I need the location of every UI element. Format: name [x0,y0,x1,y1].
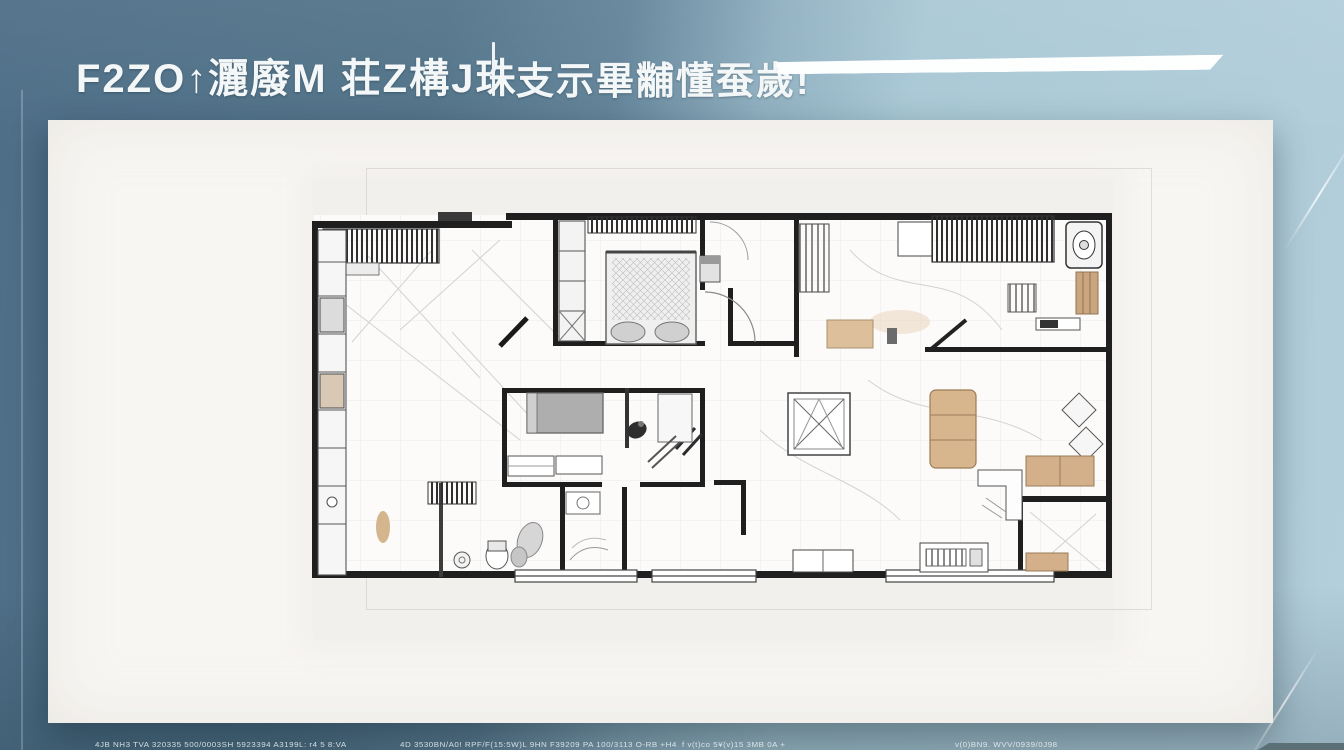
footer: 4JB NH3 TVA 320335 500/0003SH 5923394 A3… [0,738,1344,750]
washer-icon [1066,222,1102,268]
poster-background: F2ZO↑灑廢M 荘Z構J珠 支示畢黼懂蚕歲! [0,0,1344,750]
footer-text-a: 4JB NH3 TVA 320335 500/0003SH 5923394 A3… [95,740,347,748]
accent-bar [776,55,1228,75]
background-streak-top [1284,139,1344,250]
title-right: 支示畢黼懂蚕歲! [516,50,811,105]
footer-text-c: f v(t)co 5¥(v)15 3MB 0A + [682,740,785,748]
header: F2ZO↑灑廢M 荘Z構J珠 支示畢黼懂蚕歲! [0,0,1344,120]
title-divider [492,42,495,96]
table-icon [788,393,850,455]
living-room-cabinets [318,230,346,575]
floor-plan [300,200,1130,595]
background-vertical-line [21,90,23,750]
bed-icon [606,252,696,344]
title-left: F2ZO↑灑廢M 荘Z構J珠 [76,46,517,104]
toilet-icon [486,541,508,569]
footer-text-b: 4D 3530BN/A0! RPF/F(15:5W)L 9HN F39209 P… [400,740,677,748]
footer-text-d: v(0)BN9. WVV/0939/0J98 [955,740,1058,748]
